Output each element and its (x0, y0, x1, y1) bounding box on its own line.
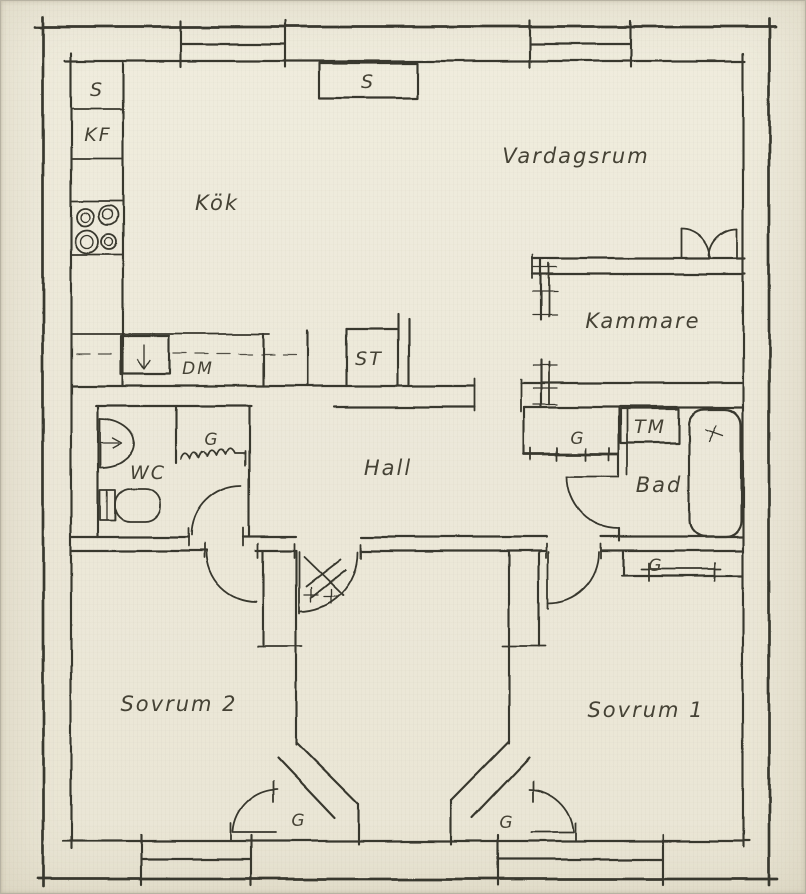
bedroom-corner-closets (231, 781, 576, 841)
room-label-wc: WC (130, 462, 166, 484)
fixture-label-s-cabinet: S (90, 79, 104, 101)
closet-sovrum1-top (621, 552, 743, 581)
kitchen-fittings (71, 61, 418, 386)
bathtub-icon (689, 409, 741, 537)
fixture-label-tm: TM (634, 416, 666, 438)
closet-door-arc (529, 789, 574, 831)
entrance-door (299, 552, 358, 613)
fixture-label-g-sovrum1-top: G (648, 556, 663, 576)
kitchen-sink-icon (121, 336, 169, 374)
fixture-label-g-sovrum2: G (291, 811, 306, 831)
window-sovrum2-bottom (141, 835, 251, 885)
fixture-label-st: ST (355, 348, 383, 370)
wc-room (98, 406, 249, 546)
bad-door-arc (566, 476, 619, 529)
entrance-mark-icon (304, 557, 346, 603)
fixture-label-dm: DM (182, 359, 214, 379)
floor-plan-paper: Kök Vardagsrum Kammare Hall WC Bad Sovru… (0, 0, 806, 894)
fixture-label-g-wc: G (204, 430, 219, 450)
fixture-label-g-sovrum1: G (499, 813, 514, 833)
hall-upper-walls (71, 314, 521, 411)
fixture-label-s-sideboard: S (361, 71, 375, 93)
fixture-label-kf: KF (84, 124, 111, 146)
double-door-kammare (681, 229, 737, 258)
floor-plan-svg: Kök Vardagsrum Kammare Hall WC Bad Sovru… (1, 1, 806, 894)
room-label-kammare: Kammare (585, 309, 700, 333)
stairwell-walls (257, 552, 545, 844)
sovrum1-door-arc (548, 552, 599, 603)
room-label-vardagsrum: Vardagsrum (502, 144, 649, 168)
outer-walls (35, 17, 777, 887)
room-label-bad: Bad (636, 473, 683, 497)
room-label-sovrum2: Sovrum 2 (120, 692, 237, 716)
wc-toilet-icon (100, 489, 160, 521)
sovrum2-door-arc (206, 552, 256, 602)
closet-door-arc (233, 789, 278, 831)
closet-sovrum2 (231, 781, 278, 841)
fixture-label-g-bad: G (570, 429, 585, 449)
room-label-kok: Kök (195, 191, 239, 215)
closet-sovrum1 (529, 781, 576, 841)
room-label-sovrum1: Sovrum 1 (587, 698, 704, 722)
window-sovrum1-bottom (498, 835, 663, 885)
wc-basin-icon (100, 419, 134, 467)
wc-door-arc (191, 485, 241, 535)
labels: Kök Vardagsrum Kammare Hall WC Bad Sovru… (84, 71, 704, 833)
stove-burners-icon (76, 206, 118, 253)
room-label-hall: Hall (364, 456, 412, 480)
